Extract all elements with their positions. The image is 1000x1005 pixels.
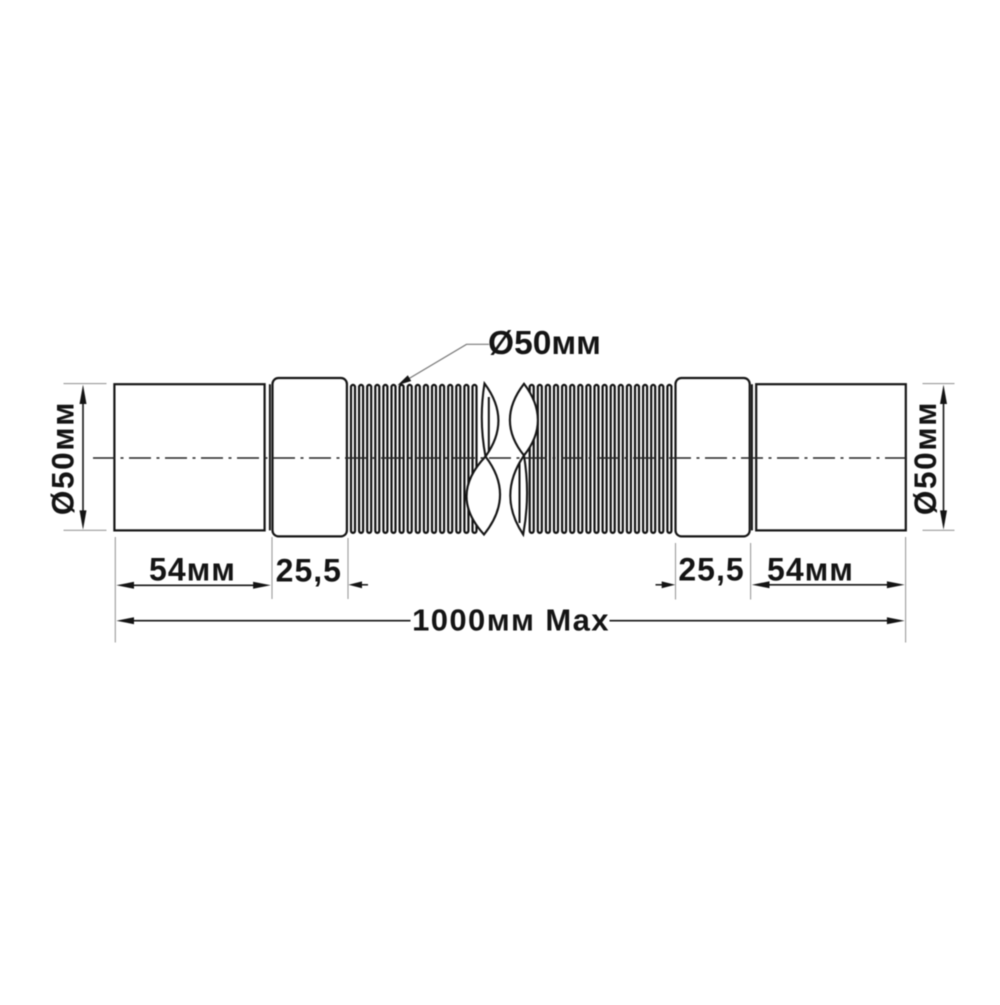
svg-text:54мм: 54мм — [149, 552, 236, 588]
svg-text:Ø50мм: Ø50мм — [488, 325, 601, 362]
svg-text:54мм: 54мм — [767, 552, 854, 588]
svg-text:25,5: 25,5 — [276, 553, 342, 589]
svg-text:1000мм Max: 1000мм Max — [412, 603, 610, 638]
svg-text:Ø50мм: Ø50мм — [907, 401, 943, 515]
svg-text:25,5: 25,5 — [678, 552, 744, 588]
svg-text:Ø50мм: Ø50мм — [45, 401, 81, 515]
